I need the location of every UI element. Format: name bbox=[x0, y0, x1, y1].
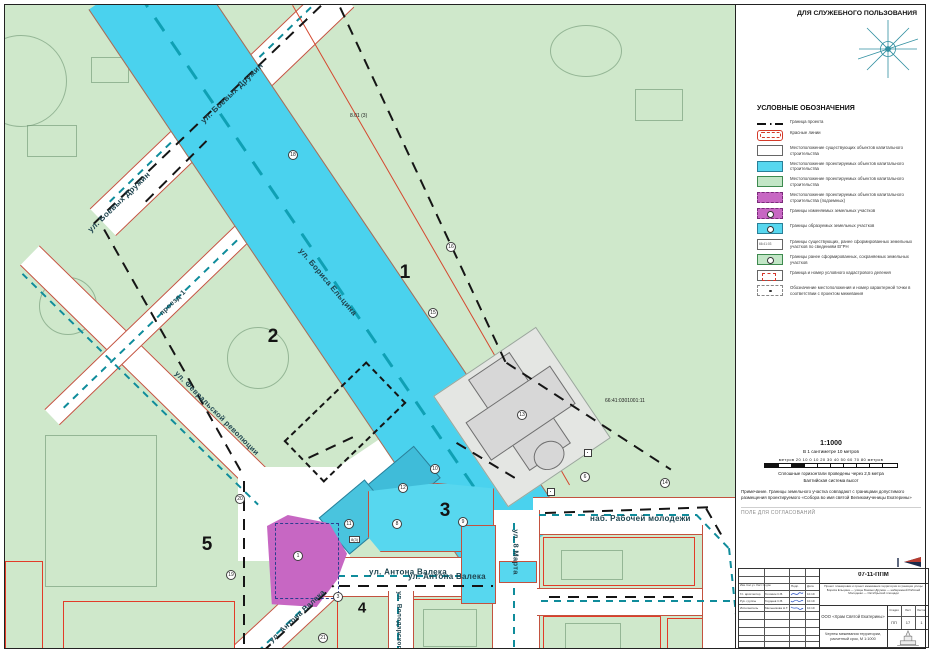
scale-subtitle: В 1 сантиметре 10 метров bbox=[740, 449, 922, 454]
tower-logo-icon bbox=[891, 630, 925, 647]
legend-item: Граница и номер условного кадастрового д… bbox=[757, 270, 923, 281]
street-label: наб. Рабочей молодежи bbox=[590, 514, 691, 523]
sheet-label: Лист bbox=[901, 608, 915, 612]
parcel-number: 20 bbox=[235, 494, 245, 504]
legend-item: Границы образуемых земельных участков bbox=[757, 223, 923, 234]
project-boundary bbox=[549, 596, 701, 598]
parcel-number: 13 bbox=[517, 410, 527, 420]
stamp-row-name: Гордеев С.В. bbox=[765, 599, 788, 603]
sheet-value: 17 bbox=[901, 620, 915, 625]
parcel-number: 12 bbox=[398, 483, 408, 493]
planned-green-object-icon bbox=[757, 176, 783, 187]
legend-label: Местоположение проектируемых объектов ка… bbox=[790, 176, 920, 187]
signature-icon bbox=[790, 605, 804, 611]
legend-item: Граница проекта bbox=[757, 119, 923, 125]
stamp-project: Проект планировки и проект межевания тер… bbox=[821, 585, 926, 604]
scale-bar-labels: метров 20 10 0 10 20 30 40 50 60 70 80 м… bbox=[740, 457, 922, 462]
block-number: 5 bbox=[202, 534, 213, 556]
land-block bbox=[5, 561, 43, 648]
stage-label: Стадия bbox=[887, 608, 901, 612]
changed-parcel-icon bbox=[757, 208, 783, 219]
stamp-row-name: Мельникова Н.Т. bbox=[765, 606, 788, 610]
stamp-row-role: Гл. архитектор bbox=[740, 592, 764, 596]
height-system-note: Балтийская система высот bbox=[740, 478, 922, 483]
scale-block: 1:1000 В 1 сантиметре 10 метров метров 2… bbox=[740, 440, 922, 483]
parcel-number: 14 bbox=[660, 478, 670, 488]
block-number: 4 bbox=[358, 600, 366, 617]
scale-bar bbox=[764, 463, 898, 468]
plan-sheet: ул. Боевых Дружин ул. Боевых Дружин прое… bbox=[0, 0, 930, 653]
legend-label: Граница проекта bbox=[790, 119, 920, 125]
parcel-box-label: 8(3) bbox=[349, 536, 360, 543]
parcel-number: 11 bbox=[344, 519, 354, 529]
parcel-number: 19 bbox=[226, 570, 236, 580]
stamp-row-date: 10.19 bbox=[807, 606, 819, 610]
block-number: 3 bbox=[440, 500, 451, 522]
parcel-number: 1 bbox=[293, 551, 303, 561]
cadastral-number: 66:41:0301001:11 bbox=[605, 398, 645, 404]
quarter-division-icon bbox=[757, 270, 783, 281]
legend-label: Красные линии bbox=[790, 130, 920, 136]
drawing-title: Чертеж межевания территории, расчетный с… bbox=[821, 632, 885, 641]
red-lines-icon bbox=[757, 130, 783, 141]
building-outline bbox=[635, 89, 683, 121]
block-number: 2 bbox=[268, 326, 279, 348]
legend-item: Местоположение проектируемых объектов ка… bbox=[757, 192, 923, 203]
legend-label: Местоположение проектируемых объектов ка… bbox=[790, 161, 920, 172]
parcel-number: 8 bbox=[392, 519, 402, 529]
signature-icon bbox=[790, 591, 804, 597]
park-path bbox=[550, 25, 622, 77]
stamp-company: ООО «Храм Святой Екатерины» bbox=[821, 614, 885, 619]
parcel-number: 10 bbox=[430, 464, 440, 474]
egrn-parcel-icon: 66:41:03 bbox=[757, 239, 783, 250]
legend-label: Местоположение проектируемых объектов ка… bbox=[790, 192, 920, 203]
legend-label: Границы образуемых земельных участков bbox=[790, 223, 920, 229]
parcel-number: 16 bbox=[446, 242, 456, 252]
stamp-row-role: Рук. группы bbox=[740, 599, 764, 603]
legend-item: Местоположение существующих объектов кап… bbox=[757, 145, 923, 156]
side-panel: ДЛЯ СЛУЖЕБНОГО ПОЛЬЗОВАНИЯ УСЛОВНЫЕ ОБОЗ… bbox=[736, 5, 925, 648]
legend: Граница проекта Красные линии Местополож… bbox=[757, 119, 923, 301]
parcel-planned bbox=[461, 525, 496, 604]
building-outline bbox=[565, 623, 621, 648]
legend-label: Границы существующих, ранее сформированн… bbox=[790, 239, 920, 250]
building-outline bbox=[45, 435, 157, 587]
legend-title: УСЛОВНЫЕ ОБОЗНАЧЕНИЯ bbox=[757, 105, 855, 112]
contours-note: Сплошные горизонтали проведены через 2,5… bbox=[740, 471, 922, 476]
street-label: ул. 8 Марта bbox=[512, 529, 521, 574]
kept-parcel-icon bbox=[757, 254, 783, 265]
approvals-field: ПОЛЕ ДЛЯ СОГЛАСОВАНИЙ bbox=[741, 507, 921, 516]
underground-object-icon bbox=[757, 192, 783, 203]
parcel-number: 6 bbox=[580, 472, 590, 482]
legend-item: Красные линии bbox=[757, 130, 923, 141]
street-right-edge bbox=[702, 525, 735, 648]
planned-object-icon bbox=[757, 161, 783, 172]
stamp-row-role: Исполнитель bbox=[740, 606, 764, 610]
park-path bbox=[5, 35, 67, 127]
survey-point bbox=[584, 449, 592, 457]
survey-point-icon bbox=[757, 285, 783, 296]
survey-point bbox=[547, 488, 555, 496]
legend-item: Местоположение проектируемых объектов ка… bbox=[757, 161, 923, 172]
elevation-label: 8.01 (3) bbox=[350, 113, 367, 119]
note-block: Примечание. Границы земельного участка с… bbox=[741, 489, 921, 501]
park-path bbox=[227, 327, 289, 389]
stamp-columns-header: Изм. Кол.уч. Лист № док. bbox=[740, 584, 788, 587]
panel-divider bbox=[735, 4, 736, 649]
parcel-number: 9 bbox=[458, 517, 468, 527]
parcel-number: 18 bbox=[288, 150, 298, 160]
boundary-line-icon bbox=[757, 123, 783, 125]
stamp-columns-header: Подп. bbox=[791, 584, 804, 588]
signature-icon bbox=[790, 598, 804, 604]
stamp-row-name: Головин С.В. bbox=[765, 592, 788, 596]
sheets-value: 1 bbox=[915, 620, 928, 625]
company-flag-icon bbox=[896, 556, 922, 568]
project-boundary bbox=[243, 481, 245, 648]
block-number: 1 bbox=[400, 262, 411, 284]
sheets-label: Листов bbox=[915, 608, 928, 612]
building-outline bbox=[423, 609, 477, 647]
legend-label: Границы изменяемых земельных участков bbox=[790, 208, 920, 214]
compass-icon bbox=[858, 19, 918, 79]
parcel-number: 15 bbox=[428, 308, 438, 318]
street-label-note: ул. Антона Валека bbox=[369, 568, 447, 577]
existing-object-icon bbox=[757, 145, 783, 156]
legend-label: Местоположение существующих объектов кап… bbox=[790, 145, 920, 156]
stage-value: ПП bbox=[887, 620, 901, 625]
legend-label: Обозначение местоположения и номер харак… bbox=[790, 285, 920, 296]
building-outline bbox=[561, 550, 623, 580]
note-text-2: «Собора во имя святой Великомученицы Ека… bbox=[802, 495, 912, 500]
classification-label: ДЛЯ СЛУЖЕБНОГО ПОЛЬЗОВАНИЯ bbox=[797, 10, 917, 17]
stamp-row-date: 10.19 bbox=[807, 599, 819, 603]
land-block bbox=[63, 601, 235, 648]
legend-label: Граница и номер условного кадастрового д… bbox=[790, 270, 920, 276]
parcel-number: 21 bbox=[318, 633, 328, 643]
legend-item: Границы изменяемых земельных участков bbox=[757, 208, 923, 219]
parcel-number: 3 bbox=[333, 592, 343, 602]
stamp-columns-header: Дата bbox=[807, 584, 819, 588]
map-canvas: ул. Боевых Дружин ул. Боевых Дружин прое… bbox=[5, 5, 735, 648]
stamp-code: 07-11-ППМ bbox=[819, 572, 928, 578]
legend-item: Границы ранее сформированных, сохраняемы… bbox=[757, 254, 923, 265]
title-block: Изм. Кол.уч. Лист № док. Подп. Дата Гл. … bbox=[738, 568, 929, 648]
project-boundary bbox=[339, 585, 493, 587]
street-label: ул. Володарского bbox=[396, 591, 403, 648]
scale-ratio: 1:1000 bbox=[740, 440, 922, 447]
legend-item: Местоположение проектируемых объектов ка… bbox=[757, 176, 923, 187]
legend-item: 66:41:03 Границы существующих, ранее сфо… bbox=[757, 239, 923, 250]
legend-item: Обозначение местоположения и номер харак… bbox=[757, 285, 923, 296]
legend-label: Границы ранее сформированных, сохраняемы… bbox=[790, 254, 920, 265]
building-outline bbox=[27, 125, 77, 157]
street-centerline bbox=[541, 600, 735, 602]
stamp-row-date: 10.19 bbox=[807, 592, 819, 596]
formed-parcel-icon bbox=[757, 223, 783, 234]
